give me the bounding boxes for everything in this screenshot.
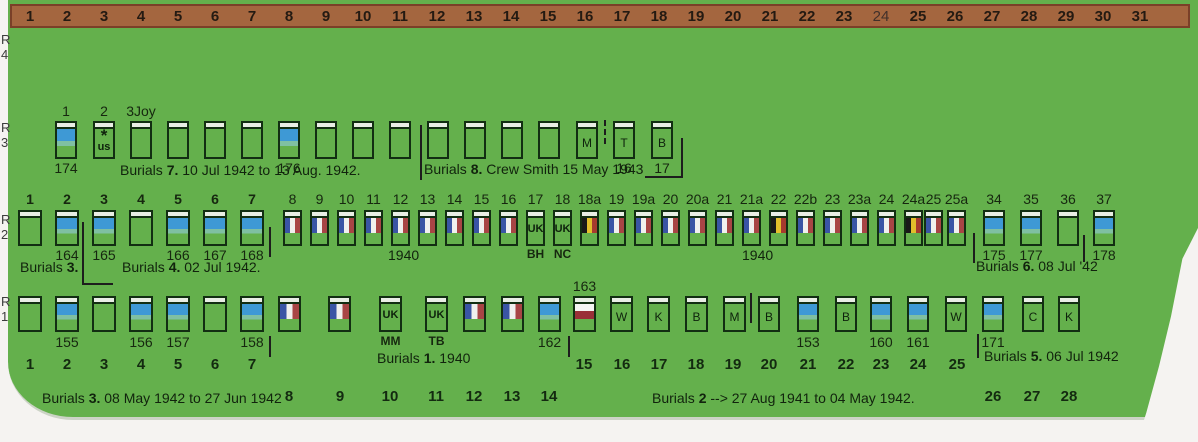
grave-marker xyxy=(315,121,337,159)
grave-body xyxy=(985,218,1003,244)
france-flag-icon xyxy=(280,304,299,319)
grave-body xyxy=(312,218,327,244)
grave-body xyxy=(57,304,77,330)
france-flag-icon xyxy=(465,304,484,319)
france-flag-icon xyxy=(285,218,300,233)
grave-body xyxy=(906,218,921,244)
belgium-flag-icon xyxy=(582,218,597,233)
grave-body xyxy=(1095,218,1113,244)
grave-marker: UK xyxy=(526,210,545,246)
ruler-number: 10 xyxy=(355,8,372,25)
plot-number: 13 xyxy=(504,388,521,405)
ruler-number: 16 xyxy=(577,8,594,25)
grave-letter: B xyxy=(837,304,855,330)
grave-letter: W xyxy=(947,304,965,330)
grave-number-above: 9 xyxy=(316,191,324,207)
row-label-r3: R3 xyxy=(1,120,10,150)
grave-number-above: 23a xyxy=(848,191,871,207)
divider-line xyxy=(82,222,84,283)
grave-marker xyxy=(877,210,896,246)
plot-number: 17 xyxy=(651,356,668,373)
grave-body: B xyxy=(760,304,778,330)
grave-number-below: NC xyxy=(554,247,571,261)
grave-marker: W xyxy=(610,296,633,332)
grave-number-above: 23 xyxy=(825,191,841,207)
divider-line xyxy=(82,283,113,285)
grave-number-above: 10 xyxy=(339,191,355,207)
row-label-r2: R2 xyxy=(1,212,10,242)
france-flag-icon xyxy=(879,218,894,233)
grave-marker xyxy=(904,210,923,246)
plot-number: 3 xyxy=(100,356,108,373)
note-burials3_range: Burials 3. 08 May 1942 to 27 Jun 1942 xyxy=(42,390,282,406)
grave-letter: C xyxy=(1024,304,1042,330)
grave-number-above: 3 xyxy=(100,191,108,207)
grave-marker xyxy=(203,210,227,246)
ruler-number: 31 xyxy=(1132,8,1149,25)
grave-marker xyxy=(129,210,153,246)
grave-body: UK xyxy=(528,218,543,244)
grave-marker xyxy=(870,296,892,332)
ruler-number: 30 xyxy=(1095,8,1112,25)
grave-marker xyxy=(823,210,842,246)
grave-body: B xyxy=(653,129,671,157)
grave-body: *us xyxy=(95,129,113,157)
grave-body xyxy=(242,304,262,330)
grave-body xyxy=(243,129,261,157)
grave-marker xyxy=(203,296,227,332)
grave-body xyxy=(744,218,759,244)
uk-label: UK xyxy=(427,304,446,330)
grave-body xyxy=(540,304,559,330)
france-flag-icon xyxy=(690,218,705,233)
grave-marker xyxy=(445,210,464,246)
plot-number: 19 xyxy=(725,356,742,373)
grave-letter: B xyxy=(653,129,671,157)
grave-number-below: BH xyxy=(527,247,544,261)
grave-marker xyxy=(1057,210,1079,246)
grave-body: M xyxy=(725,304,744,330)
plot-number: 4 xyxy=(137,356,145,373)
grave-marker: B xyxy=(685,296,708,332)
ruler-number: 11 xyxy=(392,8,408,25)
uk-label: UK xyxy=(381,304,400,330)
grave-marker xyxy=(947,210,966,246)
grave-marker xyxy=(538,121,560,159)
ruler-number: 29 xyxy=(1058,8,1075,25)
grave-number-above: 21a xyxy=(740,191,763,207)
grave-number-above: 25a xyxy=(945,191,968,207)
grave-body xyxy=(503,129,521,157)
plot-number: 7 xyxy=(248,356,256,373)
grave-number-below: 174 xyxy=(54,160,77,176)
grave-body xyxy=(280,129,298,157)
ruler-number: 23 xyxy=(836,8,853,25)
grave-number-above: 2 xyxy=(100,103,108,119)
divider-line xyxy=(420,125,422,180)
grave-number-above: 36 xyxy=(1060,191,1076,207)
grave-marker xyxy=(166,210,190,246)
grave-letter: K xyxy=(1060,304,1078,330)
grave-letter: M xyxy=(578,129,596,157)
grave-body xyxy=(540,129,558,157)
grave-marker xyxy=(742,210,761,246)
grave-body xyxy=(663,218,678,244)
ruler-number: 3 xyxy=(100,8,108,25)
divider-line xyxy=(269,336,271,357)
grave-marker xyxy=(204,121,226,159)
grave-marker xyxy=(499,210,518,246)
us-star-marker: *us xyxy=(95,129,113,157)
grave-body: UK xyxy=(381,304,400,330)
grave-number-above: 24 xyxy=(879,191,895,207)
grave-number-above: 11 xyxy=(366,191,381,207)
grave-marker xyxy=(92,296,116,332)
grave-body: B xyxy=(837,304,855,330)
grave-number-below: 156 xyxy=(129,334,152,350)
grave-body xyxy=(168,218,188,244)
note-burials3: Burials 3. xyxy=(20,259,78,275)
grave-body xyxy=(429,129,447,157)
grave-number-below: TB xyxy=(429,334,445,348)
grave-marker xyxy=(464,121,486,159)
note-burials1: Burials 1. 1940 xyxy=(377,350,470,366)
grave-marker: K xyxy=(1058,296,1080,332)
france-flag-icon xyxy=(474,218,489,233)
grave-number-below: 158 xyxy=(240,334,263,350)
grave-marker xyxy=(240,296,264,332)
grave-marker xyxy=(328,296,351,332)
grave-body xyxy=(909,304,927,330)
grave-marker: M xyxy=(723,296,746,332)
grave-marker xyxy=(907,296,929,332)
grave-letter: B xyxy=(687,304,706,330)
divider-line xyxy=(977,334,979,358)
note-burials6: Burials 6. 08 Jul '42 xyxy=(976,258,1098,274)
grave-letter: K xyxy=(649,304,668,330)
grave-number-above: 21 xyxy=(717,191,733,207)
grave-marker: UK xyxy=(553,210,572,246)
grave-marker xyxy=(661,210,680,246)
grave-number-above: 19 xyxy=(609,191,625,207)
grave-body: C xyxy=(1024,304,1042,330)
grave-letter: B xyxy=(760,304,778,330)
grave-number-above: 15 xyxy=(474,191,490,207)
grave-body xyxy=(879,218,894,244)
grave-number-below: 157 xyxy=(166,334,189,350)
grave-body xyxy=(852,218,867,244)
grave-body xyxy=(339,218,354,244)
grave-body: B xyxy=(687,304,706,330)
divider-line xyxy=(750,293,752,323)
grave-number-above: 35 xyxy=(1023,191,1039,207)
grave-body xyxy=(20,218,40,244)
grave-marker xyxy=(850,210,869,246)
plot-number: 28 xyxy=(1061,388,1078,405)
plot-number: 16 xyxy=(614,356,631,373)
grave-body xyxy=(501,218,516,244)
grave-body xyxy=(131,218,151,244)
grave-body xyxy=(354,129,372,157)
grave-body xyxy=(317,129,335,157)
grave-body xyxy=(503,304,522,330)
grave-number-above: 22b xyxy=(794,191,817,207)
grave-marker xyxy=(240,210,264,246)
plot-number: 26 xyxy=(985,388,1002,405)
grave-body xyxy=(94,218,114,244)
grave-marker xyxy=(337,210,356,246)
grave-number-below: 155 xyxy=(55,334,78,350)
ruler-number: 9 xyxy=(322,8,330,25)
grave-body xyxy=(57,129,75,157)
grave-body xyxy=(609,218,624,244)
grave-marker xyxy=(501,296,524,332)
france-flag-icon xyxy=(636,218,651,233)
column-ruler xyxy=(10,4,1190,28)
grave-number-below: 162 xyxy=(538,334,561,350)
divider-line xyxy=(645,176,681,178)
grave-body: UK xyxy=(555,218,570,244)
grave-marker: T xyxy=(613,121,635,159)
grave-marker xyxy=(924,210,943,246)
grave-marker xyxy=(352,121,374,159)
grave-marker: W xyxy=(945,296,967,332)
grave-body xyxy=(169,129,187,157)
grave-body xyxy=(206,129,224,157)
note-burials2_range: Burials 2 --> 27 Aug 1941 to 04 May 1942… xyxy=(652,390,915,406)
grave-marker xyxy=(1093,210,1115,246)
plot-number: 2 xyxy=(63,356,71,373)
grave-number-above: 3Joy xyxy=(126,103,156,119)
grave-marker xyxy=(769,210,788,246)
plot-number: 10 xyxy=(382,388,399,405)
france-flag-icon xyxy=(663,218,678,233)
grave-number-above: 18a xyxy=(578,191,601,207)
grave-marker xyxy=(634,210,653,246)
grave-marker xyxy=(715,210,734,246)
grave-body: K xyxy=(1060,304,1078,330)
grave-number-above: 12 xyxy=(393,191,409,207)
grave-marker xyxy=(427,121,449,159)
grave-marker xyxy=(580,210,599,246)
grave-body xyxy=(131,304,151,330)
grave-number-below: 165 xyxy=(92,247,115,263)
grave-marker xyxy=(573,296,596,332)
france-flag-icon xyxy=(366,218,381,233)
grave-marker: C xyxy=(1022,296,1044,332)
france-flag-icon xyxy=(420,218,435,233)
grave-body: M xyxy=(578,129,596,157)
grave-body xyxy=(366,218,381,244)
grave-marker xyxy=(688,210,707,246)
grave-marker xyxy=(55,210,79,246)
grave-body xyxy=(391,129,409,157)
ruler-number: 18 xyxy=(651,8,668,25)
plot-number: 12 xyxy=(466,388,483,405)
plot-number: 25 xyxy=(949,356,966,373)
grave-marker: B xyxy=(758,296,780,332)
grave-body xyxy=(285,218,300,244)
grave-body xyxy=(799,304,817,330)
ruler-number: 1 xyxy=(26,8,34,25)
note-year_1940_left: 1940 xyxy=(388,247,419,263)
plot-number: 20 xyxy=(761,356,778,373)
grave-body xyxy=(798,218,813,244)
burial-plot-map: 1234567891011121314151617181920212223242… xyxy=(0,0,1198,442)
ruler-number: 28 xyxy=(1021,8,1038,25)
grave-body xyxy=(20,304,40,330)
grave-number-above: 1 xyxy=(62,103,70,119)
grave-body xyxy=(949,218,964,244)
grave-number-below: 160 xyxy=(869,334,892,350)
ruler-number: 25 xyxy=(910,8,927,25)
grave-body xyxy=(582,218,597,244)
grave-body xyxy=(57,218,77,244)
grave-body: K xyxy=(649,304,668,330)
ruler-number: 19 xyxy=(688,8,705,25)
grave-number-above: 24a xyxy=(902,191,925,207)
ruler-number: 27 xyxy=(984,8,1001,25)
grave-number-above: 163 xyxy=(573,278,596,294)
grave-body xyxy=(205,304,225,330)
france-flag-icon xyxy=(852,218,867,233)
ruler-number: 8 xyxy=(285,8,293,25)
grave-marker: B xyxy=(651,121,673,159)
grave-body xyxy=(447,218,462,244)
grave-marker xyxy=(607,210,626,246)
grave-body xyxy=(690,218,705,244)
grave-marker xyxy=(310,210,329,246)
grave-body xyxy=(872,304,890,330)
grave-number-above: 8 xyxy=(289,191,297,207)
grave-body xyxy=(575,304,594,330)
grave-body: W xyxy=(947,304,965,330)
france-flag-icon xyxy=(312,218,327,233)
grave-body xyxy=(771,218,786,244)
grave-marker xyxy=(418,210,437,246)
grave-marker xyxy=(283,210,302,246)
france-flag-icon xyxy=(717,218,732,233)
plot-number: 23 xyxy=(873,356,890,373)
grave-marker: *us xyxy=(93,121,115,159)
grave-body xyxy=(132,129,150,157)
grave-marker xyxy=(983,210,1005,246)
grave-body xyxy=(1022,218,1040,244)
grave-marker xyxy=(501,121,523,159)
grave-marker: B xyxy=(835,296,857,332)
grave-marker xyxy=(278,121,300,159)
grave-number-above: 20a xyxy=(686,191,709,207)
france-flag-icon xyxy=(501,218,516,233)
grave-number-above: 34 xyxy=(986,191,1002,207)
uk-label: UK xyxy=(528,218,543,244)
plot-number: 21 xyxy=(800,356,817,373)
grave-marker xyxy=(130,121,152,159)
grave-body xyxy=(94,304,114,330)
divider-line xyxy=(681,138,683,178)
plot-number: 14 xyxy=(541,388,558,405)
row-label-r4: R4 xyxy=(1,32,10,62)
grave-marker xyxy=(389,121,411,159)
grave-number-above: 2 xyxy=(63,191,71,207)
grave-body xyxy=(465,304,484,330)
plot-number: 15 xyxy=(576,356,593,373)
belgium-flag-icon xyxy=(906,218,921,233)
france-flag-icon xyxy=(926,218,941,233)
grave-marker xyxy=(391,210,410,246)
grave-marker xyxy=(166,296,190,332)
grave-number-below: 17 xyxy=(654,160,670,176)
plot-number: 1 xyxy=(26,356,34,373)
france-flag-icon xyxy=(339,218,354,233)
grave-number-above: 14 xyxy=(447,191,463,207)
plot-number: 24 xyxy=(910,356,927,373)
grave-marker xyxy=(241,121,263,159)
grave-marker xyxy=(129,296,153,332)
note-burials7: Burials 7. 10 Jul 1942 to 13 Aug. 1942. xyxy=(120,162,361,178)
plot-number: 6 xyxy=(211,356,219,373)
grave-body xyxy=(242,218,262,244)
grave-marker xyxy=(463,296,486,332)
ruler-number: 20 xyxy=(725,8,742,25)
grave-marker xyxy=(982,296,1004,332)
plot-number: 22 xyxy=(838,356,855,373)
france-flag-icon xyxy=(503,304,522,319)
grave-marker: M xyxy=(576,121,598,159)
note-burials8: Burials 8. Crew Smith 15 May 1943 xyxy=(424,161,643,177)
grave-number-below: 161 xyxy=(906,334,929,350)
grave-body xyxy=(393,218,408,244)
grave-marker xyxy=(18,210,42,246)
note-year_1940_right: 1940 xyxy=(742,247,773,263)
ruler-number: 15 xyxy=(540,8,557,25)
divider-line-dashed xyxy=(604,120,606,144)
ruler-number: 12 xyxy=(429,8,446,25)
grave-number-above: 37 xyxy=(1096,191,1112,207)
grave-number-above: 5 xyxy=(174,191,182,207)
france-flag-icon xyxy=(393,218,408,233)
ruler-number: 6 xyxy=(211,8,219,25)
grave-number-above: 13 xyxy=(420,191,436,207)
grave-number-above: 4 xyxy=(137,191,145,207)
france-flag-icon xyxy=(744,218,759,233)
grave-body xyxy=(280,304,299,330)
divider-line xyxy=(568,336,570,357)
grave-body xyxy=(420,218,435,244)
grave-number-above: 16 xyxy=(501,191,517,207)
grave-marker: UK xyxy=(425,296,448,332)
ruler-number: 22 xyxy=(799,8,816,25)
grave-number-above: 17 xyxy=(528,191,544,207)
ruler-number: 13 xyxy=(466,8,483,25)
grave-number-above: 6 xyxy=(211,191,219,207)
grave-number-above: 20 xyxy=(663,191,679,207)
plot-number: 9 xyxy=(336,388,344,405)
grave-marker xyxy=(538,296,561,332)
grave-body xyxy=(825,218,840,244)
ruler-number: 24 xyxy=(873,8,890,25)
ruler-number: 7 xyxy=(248,8,256,25)
france-flag-icon xyxy=(609,218,624,233)
row-label-r1: R1 xyxy=(1,294,10,324)
plot-number: 5 xyxy=(174,356,182,373)
grave-number-above: 19a xyxy=(632,191,655,207)
grave-body xyxy=(330,304,349,330)
grave-body: W xyxy=(612,304,631,330)
grave-number-above: 25 xyxy=(926,191,942,207)
grave-letter: T xyxy=(615,129,633,157)
grave-body xyxy=(1059,218,1077,244)
